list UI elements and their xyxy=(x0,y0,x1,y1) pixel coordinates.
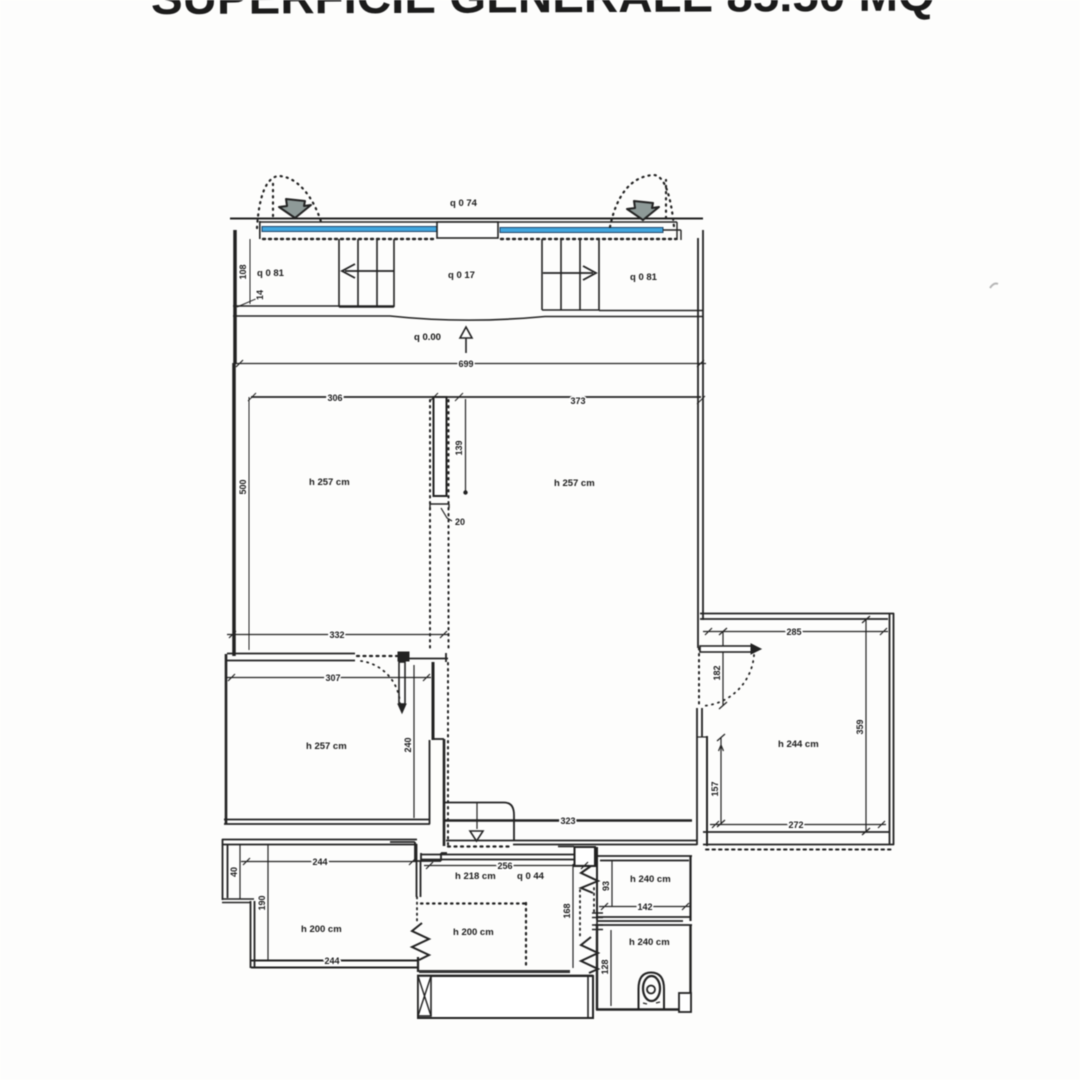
svg-text:q 0 17: q 0 17 xyxy=(448,270,475,281)
svg-text:285: 285 xyxy=(786,627,801,637)
svg-text:h 240 cm: h 240 cm xyxy=(629,937,670,948)
svg-text:14: 14 xyxy=(255,290,265,300)
svg-text:332: 332 xyxy=(329,630,344,640)
svg-text:h 200 cm: h 200 cm xyxy=(301,924,342,935)
svg-text:93: 93 xyxy=(601,881,611,891)
svg-text:SUPERFICIE GENERALE 85.50 MQ: SUPERFICIE GENERALE 85.50 MQ xyxy=(151,0,935,24)
svg-text:h 200 cm: h 200 cm xyxy=(453,927,494,938)
svg-text:139: 139 xyxy=(454,440,464,455)
svg-text:h 257 cm: h 257 cm xyxy=(306,741,347,752)
svg-text:307: 307 xyxy=(325,673,340,683)
svg-text:323: 323 xyxy=(560,816,575,826)
svg-text:q 0.00: q 0.00 xyxy=(414,332,441,343)
svg-text:240: 240 xyxy=(403,737,413,752)
svg-text:272: 272 xyxy=(788,820,803,830)
svg-text:157: 157 xyxy=(710,781,720,796)
svg-text:h 240 cm: h 240 cm xyxy=(630,874,671,885)
svg-text:373: 373 xyxy=(570,396,585,406)
svg-text:q 0 81: q 0 81 xyxy=(257,268,285,279)
svg-text:256: 256 xyxy=(497,861,512,871)
svg-text:128: 128 xyxy=(600,959,610,974)
svg-text:h 244 cm: h 244 cm xyxy=(778,739,819,750)
svg-text:306: 306 xyxy=(327,393,342,403)
svg-text:h 257 cm: h 257 cm xyxy=(554,478,595,489)
svg-text:190: 190 xyxy=(257,895,267,910)
svg-text:20: 20 xyxy=(455,517,465,527)
svg-text:q 0 44: q 0 44 xyxy=(517,871,545,882)
svg-text:h 257 cm: h 257 cm xyxy=(309,477,350,488)
svg-text:q 0 74: q 0 74 xyxy=(450,198,478,209)
svg-text:40: 40 xyxy=(229,867,239,877)
svg-text:q 0 81: q 0 81 xyxy=(630,272,658,283)
svg-text:182: 182 xyxy=(712,665,722,680)
svg-text:359: 359 xyxy=(855,719,865,734)
svg-text:142: 142 xyxy=(637,902,652,912)
svg-text:699: 699 xyxy=(458,359,473,369)
svg-text:108: 108 xyxy=(238,264,248,279)
svg-text:h 218 cm: h 218 cm xyxy=(455,871,496,882)
svg-text:168: 168 xyxy=(562,903,572,918)
svg-text:244: 244 xyxy=(324,956,339,966)
svg-text:244: 244 xyxy=(312,857,327,867)
svg-text:500: 500 xyxy=(238,479,248,494)
